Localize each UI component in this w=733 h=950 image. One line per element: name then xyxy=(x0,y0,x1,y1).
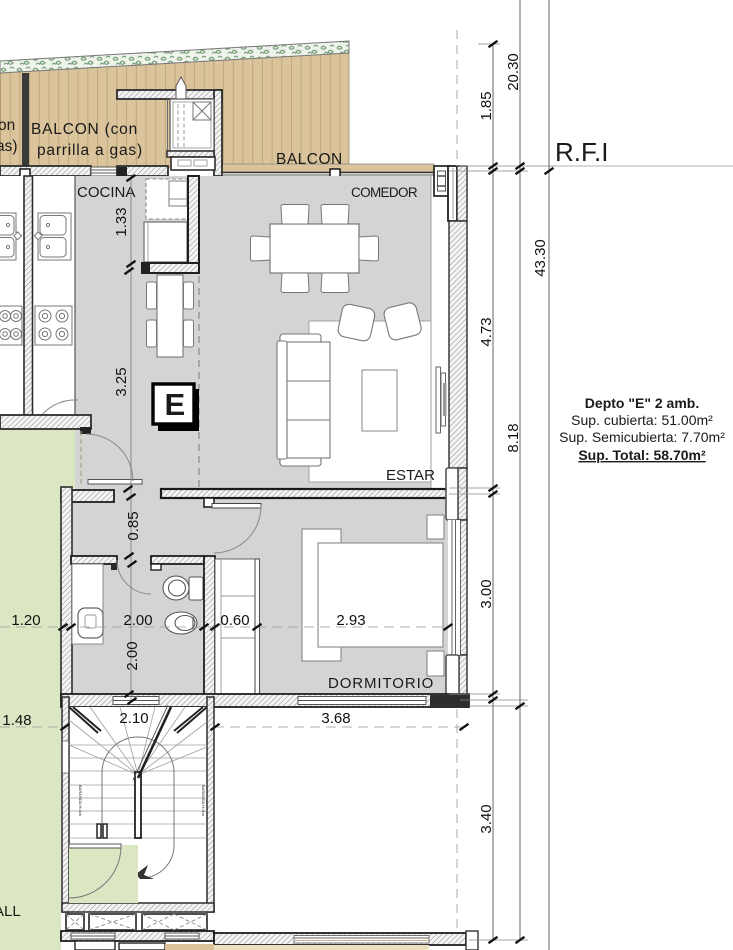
svg-text:Sup. Semicubierta: 7.70m²: Sup. Semicubierta: 7.70m² xyxy=(559,429,725,445)
svg-text:ESTAR: ESTAR xyxy=(386,467,435,484)
svg-text:2.00: 2.00 xyxy=(123,612,152,629)
svg-text:Sup. Total: 58.70m²: Sup. Total: 58.70m² xyxy=(578,447,706,463)
svg-text:Depto "E" 2 amb.: Depto "E" 2 amb. xyxy=(585,395,699,411)
svg-text:43.30: 43.30 xyxy=(532,239,549,277)
svg-text:on: on xyxy=(0,117,15,134)
svg-text:COCINA: COCINA xyxy=(77,184,135,201)
svg-text:R.F.I: R.F.I xyxy=(555,137,608,167)
svg-text:3.00: 3.00 xyxy=(478,579,495,608)
svg-text:BALCON (con: BALCON (con xyxy=(31,121,138,138)
svg-text:2.00: 2.00 xyxy=(124,641,141,670)
svg-text:BARANDA H=1m: BARANDA H=1m xyxy=(78,785,83,817)
svg-text:BALCON: BALCON xyxy=(276,151,343,168)
svg-text:3.68: 3.68 xyxy=(321,710,350,727)
svg-text:1.85: 1.85 xyxy=(478,91,495,120)
svg-text:1.48: 1.48 xyxy=(2,712,31,729)
svg-text:4.73: 4.73 xyxy=(478,317,495,346)
svg-text:parrilla a gas): parrilla a gas) xyxy=(37,142,143,159)
svg-text:8.18: 8.18 xyxy=(505,423,522,452)
svg-text:BARANDA H=1m: BARANDA H=1m xyxy=(201,785,206,817)
svg-text:2.93: 2.93 xyxy=(336,612,365,629)
svg-text:as): as) xyxy=(0,138,18,155)
svg-text:3.25: 3.25 xyxy=(113,367,130,396)
svg-text:DORMITORIO: DORMITORIO xyxy=(328,675,434,692)
svg-text:20.30: 20.30 xyxy=(505,53,522,91)
svg-text:1.33: 1.33 xyxy=(113,207,130,236)
svg-text:2.10: 2.10 xyxy=(119,710,148,727)
svg-text:1.20: 1.20 xyxy=(11,612,40,629)
svg-text:ALL: ALL xyxy=(0,903,21,920)
svg-text:3.40: 3.40 xyxy=(478,804,495,833)
svg-text:0.85: 0.85 xyxy=(125,511,142,540)
svg-text:Sup. cubierta: 51.00m²: Sup. cubierta: 51.00m² xyxy=(571,412,713,428)
svg-text:0.60: 0.60 xyxy=(220,612,249,629)
svg-text:E: E xyxy=(165,387,186,422)
svg-text:COMEDOR: COMEDOR xyxy=(351,185,418,200)
